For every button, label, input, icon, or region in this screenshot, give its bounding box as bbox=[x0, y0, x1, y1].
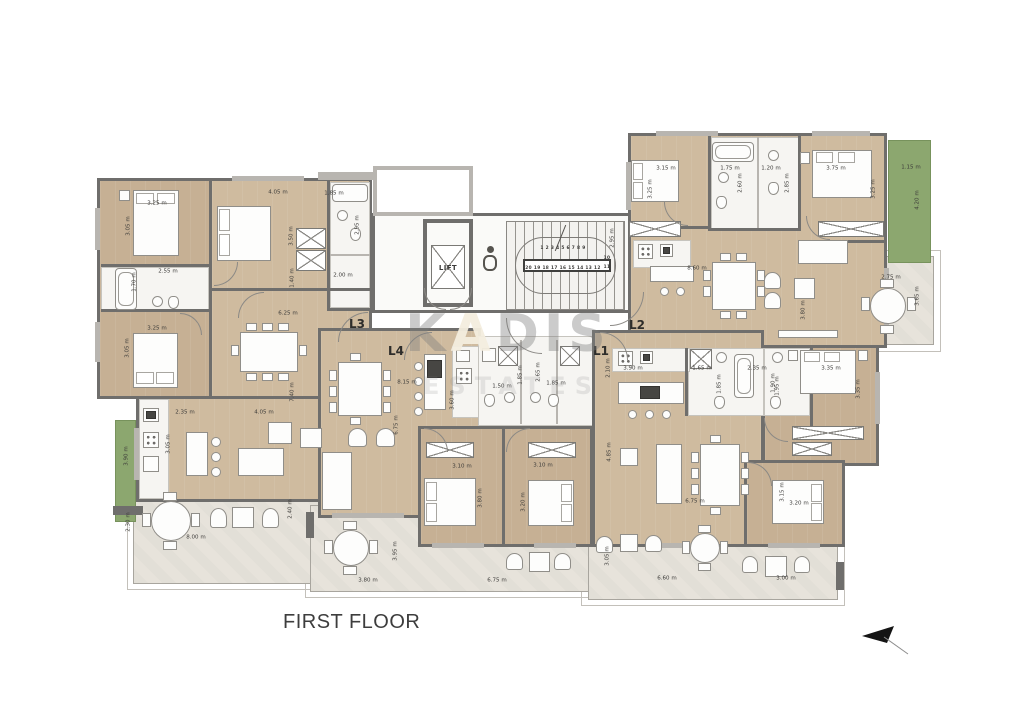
dimension-label: 3.05 m bbox=[165, 434, 171, 453]
dimension-label: 3.05 m bbox=[124, 338, 130, 357]
dimension-label: 8.60 m bbox=[687, 265, 706, 271]
dimension-label: 3.15 m bbox=[656, 165, 675, 171]
unit-label: L1 bbox=[593, 344, 609, 358]
dimension-label: 3.25 m bbox=[870, 179, 876, 198]
labels-layer: 3.25 m3.05 m4.05 m1.85 m2.95 m3.50 m2.55… bbox=[0, 0, 1024, 724]
dimension-label: 2.85 m bbox=[784, 173, 790, 192]
dimension-label: 1.75 m bbox=[720, 165, 739, 171]
dimension-label: 2.00 m bbox=[333, 272, 352, 278]
north-arrow-icon bbox=[858, 622, 914, 658]
dimension-label: 4.85 m bbox=[606, 442, 612, 461]
dimension-label: 6.75 m bbox=[393, 415, 399, 434]
dimension-label: 4.05 m bbox=[268, 189, 287, 195]
dimension-label: 1.15 m bbox=[901, 164, 920, 170]
dimension-label: 6.60 m bbox=[657, 575, 676, 581]
dimension-label: 3.05 m bbox=[604, 546, 610, 565]
dimension-label: 2.60 m bbox=[737, 173, 743, 192]
dimension-label: 2.95 m bbox=[609, 228, 615, 247]
dimension-label: 1.65 m bbox=[692, 365, 711, 371]
dimension-label: 3.80 m bbox=[358, 577, 377, 583]
unit-label: L2 bbox=[629, 318, 645, 332]
dimension-label: 8.00 m bbox=[186, 534, 205, 540]
dimension-label: 3.80 m bbox=[800, 300, 806, 319]
dimension-label: 2.95 m bbox=[354, 215, 360, 234]
stair-number-label: 10 bbox=[604, 255, 611, 260]
dimension-label: 2.75 m bbox=[881, 274, 900, 280]
dimension-label: 2.30 m bbox=[125, 512, 131, 531]
dimension-label: 1.90 m bbox=[770, 373, 776, 392]
dimension-label: 2.65 m bbox=[535, 362, 541, 381]
dimension-label: 3.05 m bbox=[125, 216, 131, 235]
dimension-label: 2.10 m bbox=[605, 358, 611, 377]
dimension-label: 3.65 m bbox=[914, 286, 920, 305]
dimension-label: 3.25 m bbox=[147, 325, 166, 331]
dimension-label: 3.50 m bbox=[288, 226, 294, 245]
stair-number-label: 1 2 3 4 5 6 7 8 9 bbox=[540, 245, 585, 250]
dimension-label: 1.40 m bbox=[289, 268, 295, 287]
unit-label: L4 bbox=[388, 344, 404, 358]
dimension-label: 1.20 m bbox=[761, 165, 780, 171]
unit-label: L3 bbox=[349, 317, 365, 331]
dimension-label: 1.85 m bbox=[324, 190, 343, 196]
dimension-label: 4.05 m bbox=[254, 409, 273, 415]
stair-number-label: 11 bbox=[604, 264, 611, 269]
dimension-label: 3.10 m bbox=[533, 462, 552, 468]
dimension-label: 3.80 m bbox=[477, 488, 483, 507]
dimension-label: 8.15 m bbox=[397, 379, 416, 385]
dimension-label: 3.75 m bbox=[826, 165, 845, 171]
dimension-label: 6.75 m bbox=[487, 577, 506, 583]
dimension-label: 2.40 m bbox=[287, 499, 293, 518]
dimension-label: 2.35 m bbox=[747, 365, 766, 371]
floor-plan: LIFT bbox=[0, 0, 1024, 724]
dimension-label: 3.10 m bbox=[452, 463, 471, 469]
dimension-label: 1.85 m bbox=[517, 365, 523, 384]
dimension-label: 1.95 m bbox=[774, 376, 780, 395]
dimension-label: 3.20 m bbox=[789, 500, 808, 506]
dimension-label: 3.60 m bbox=[449, 390, 455, 409]
dimension-label: 1.70 m bbox=[131, 272, 137, 291]
dimension-label: 3.00 m bbox=[776, 575, 795, 581]
dimension-label: 3.35 m bbox=[855, 379, 861, 398]
dimension-label: 1.50 m bbox=[492, 383, 511, 389]
page-title: FIRST FLOOR bbox=[283, 611, 420, 634]
dimension-label: 3.25 m bbox=[147, 200, 166, 206]
dimension-label: 3.15 m bbox=[779, 482, 785, 501]
dimension-label: 7.40 m bbox=[289, 382, 295, 401]
dimension-label: 3.95 m bbox=[392, 541, 398, 560]
stair-number-label: 20 19 18 17 16 15 14 13 12 bbox=[525, 265, 600, 270]
dimension-label: 6.75 m bbox=[685, 498, 704, 504]
dimension-label: 2.55 m bbox=[158, 268, 177, 274]
dimension-label: 6.25 m bbox=[278, 310, 297, 316]
dimension-label: 4.20 m bbox=[914, 190, 920, 209]
dimension-label: 3.90 m bbox=[623, 365, 642, 371]
dimension-label: 2.35 m bbox=[175, 409, 194, 415]
dimension-label: 3.90 m bbox=[123, 446, 129, 465]
dimension-label: 1.85 m bbox=[716, 374, 722, 393]
dimension-label: 3.20 m bbox=[520, 492, 526, 511]
dimension-label: 1.85 m bbox=[546, 380, 565, 386]
dimension-label: 3.35 m bbox=[821, 365, 840, 371]
dimension-label: 3.25 m bbox=[647, 179, 653, 198]
